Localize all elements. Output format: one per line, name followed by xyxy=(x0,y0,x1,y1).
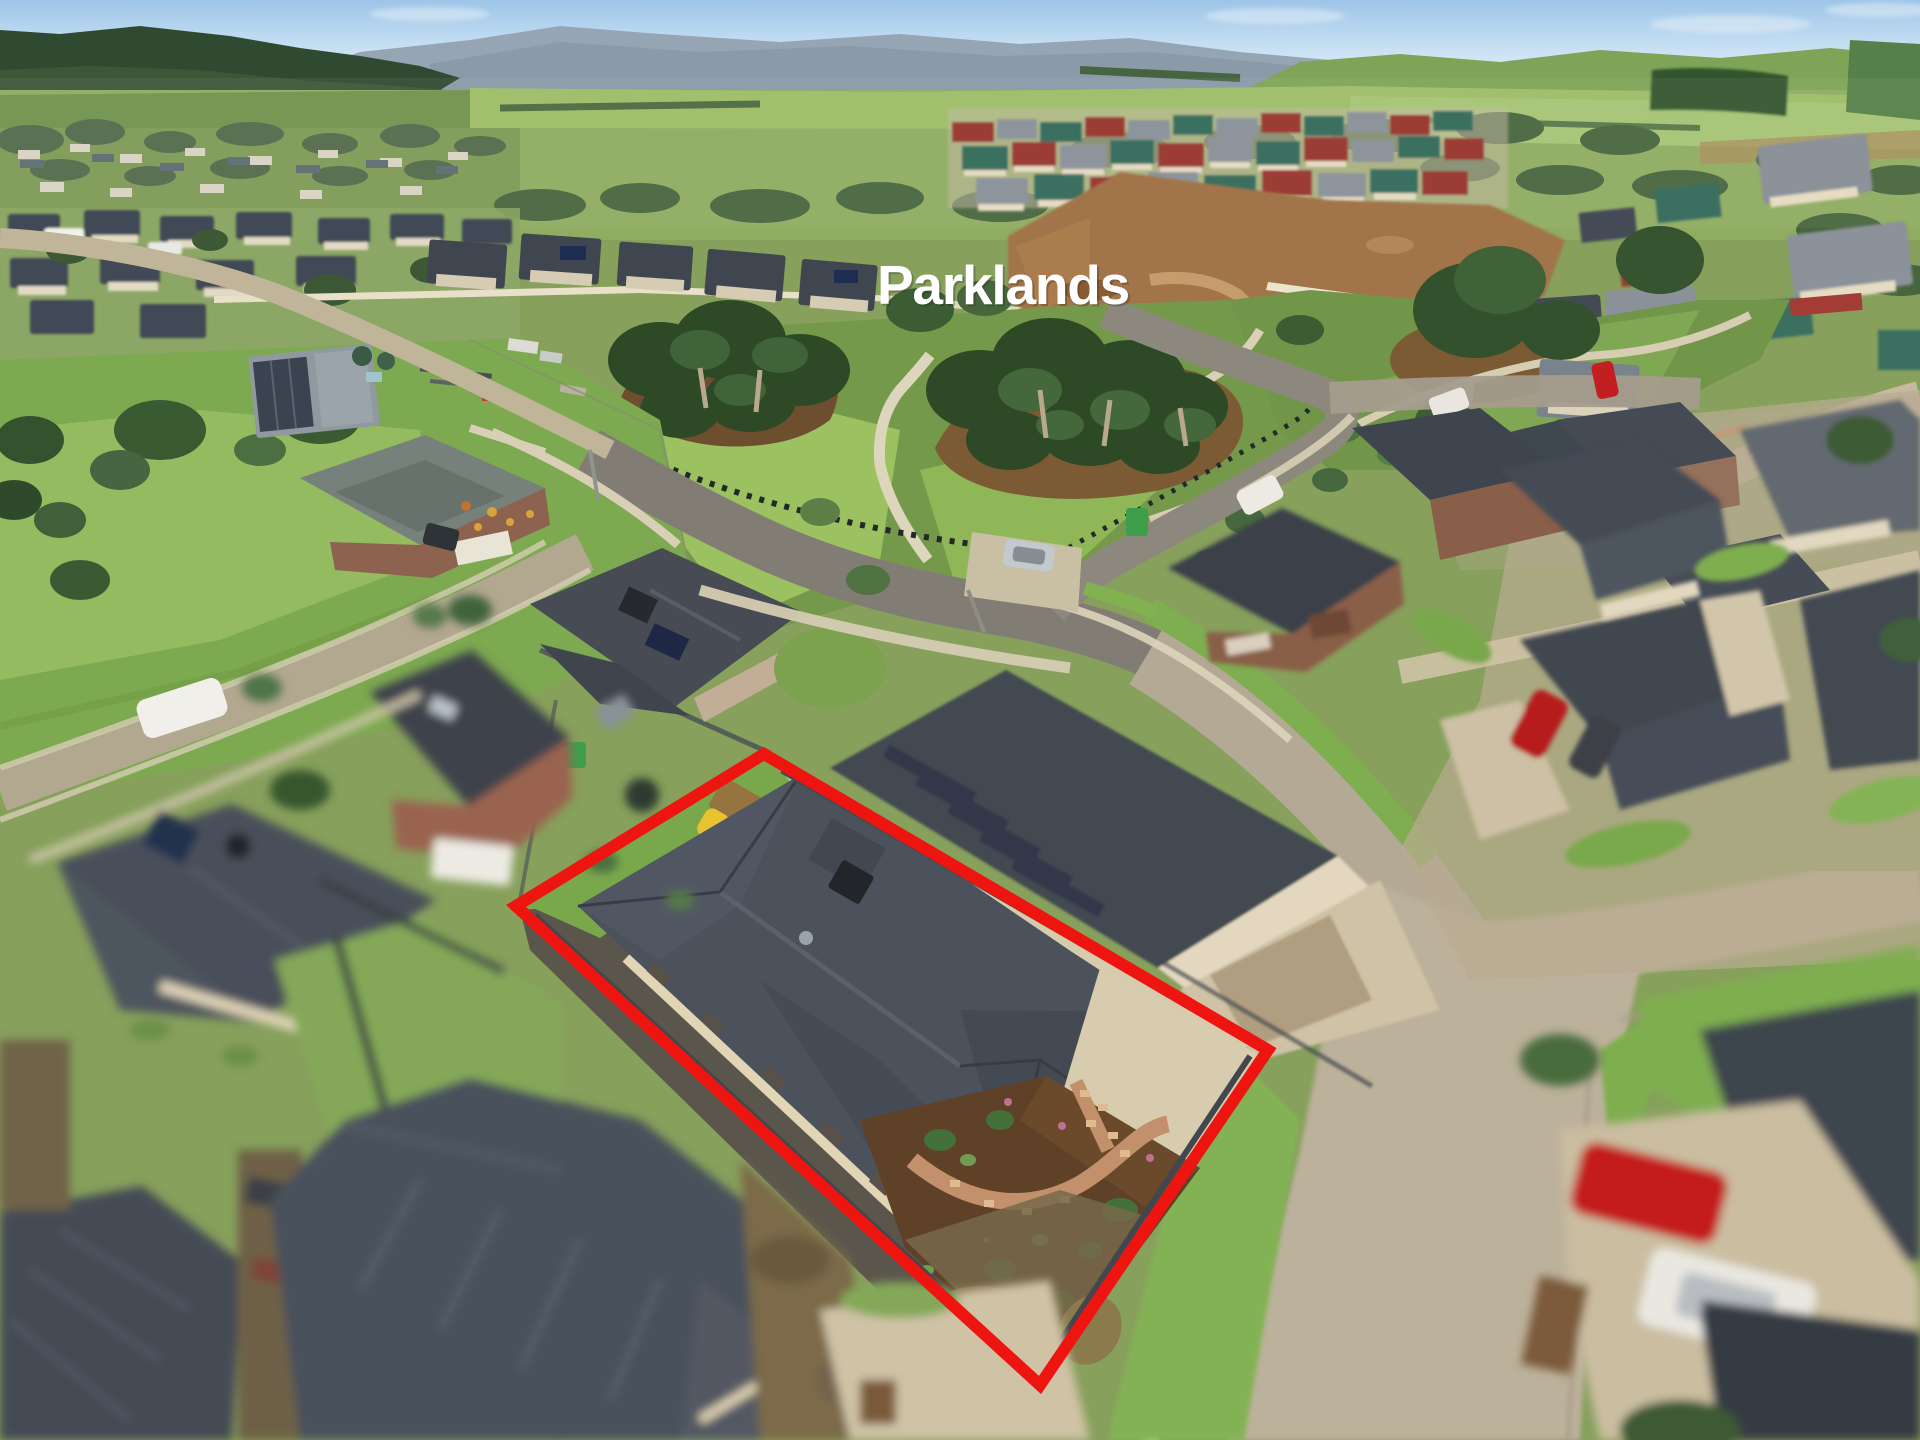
svg-text:Parklands: Parklands xyxy=(877,254,1129,316)
